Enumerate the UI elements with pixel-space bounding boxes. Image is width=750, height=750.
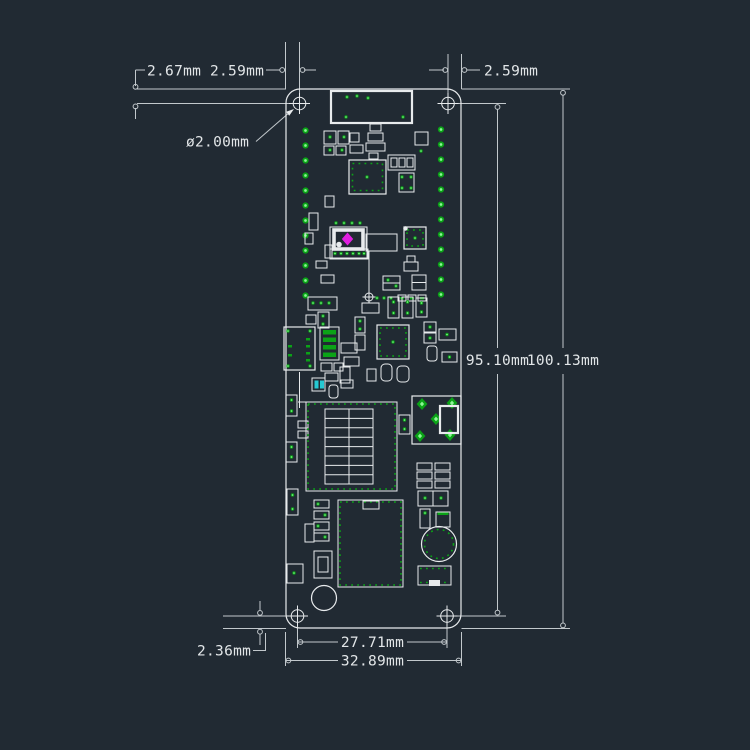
dim-bottom-offset-label: 2.36mm <box>197 644 251 660</box>
dim-top-right-offset-label: 2.59mm <box>484 64 538 80</box>
pcb-board <box>284 89 461 628</box>
ic-center <box>377 325 409 359</box>
button-module <box>412 396 461 444</box>
dim-holes-height-label: 95.10mm <box>466 353 529 369</box>
left-edge-parts <box>286 395 308 515</box>
rf-module <box>325 221 397 259</box>
dim-hole-diameter-label: ø2.00mm <box>186 135 249 151</box>
antenna-blob <box>312 586 337 611</box>
buzzer-part <box>383 256 426 290</box>
grid-component <box>417 463 450 528</box>
cad-drawing-canvas: 2.67mm 2.59mm 2.59mm ø2.00mm 95.10mm 100… <box>0 0 750 750</box>
round-component <box>418 527 457 587</box>
pcb-dimension-drawing: 2.67mm 2.59mm 2.59mm ø2.00mm 95.10mm 100… <box>0 0 750 750</box>
dim-holes-width-label: 27.71mm <box>341 635 404 651</box>
passives-around-center <box>340 297 457 383</box>
usb-connector <box>331 91 412 123</box>
display-footprint <box>306 402 410 491</box>
dim-top-left-height-label: 2.67mm <box>147 64 201 80</box>
mounting-hole-bottom-right <box>437 606 458 627</box>
board-outline <box>286 89 461 628</box>
magenta-marker <box>342 233 353 246</box>
dim-board-width-label: 32.89mm <box>341 654 404 670</box>
dimension-annotations: 2.67mm 2.59mm 2.59mm ø2.00mm 95.10mm 100… <box>133 42 599 670</box>
ic-top <box>349 160 386 194</box>
dim-top-left-offset-label: 2.59mm <box>210 64 264 80</box>
pin-pads-right <box>438 126 444 297</box>
top-component-cluster <box>324 124 428 159</box>
bottom-left-parts <box>287 500 337 611</box>
dim-board-height-label: 100.13mm <box>527 353 599 369</box>
pin-pads-left <box>302 127 308 298</box>
battery-holder <box>338 500 403 587</box>
connector-top-right <box>388 155 415 192</box>
mounting-hole-top-right <box>438 93 459 114</box>
qfn-ic <box>403 226 426 249</box>
